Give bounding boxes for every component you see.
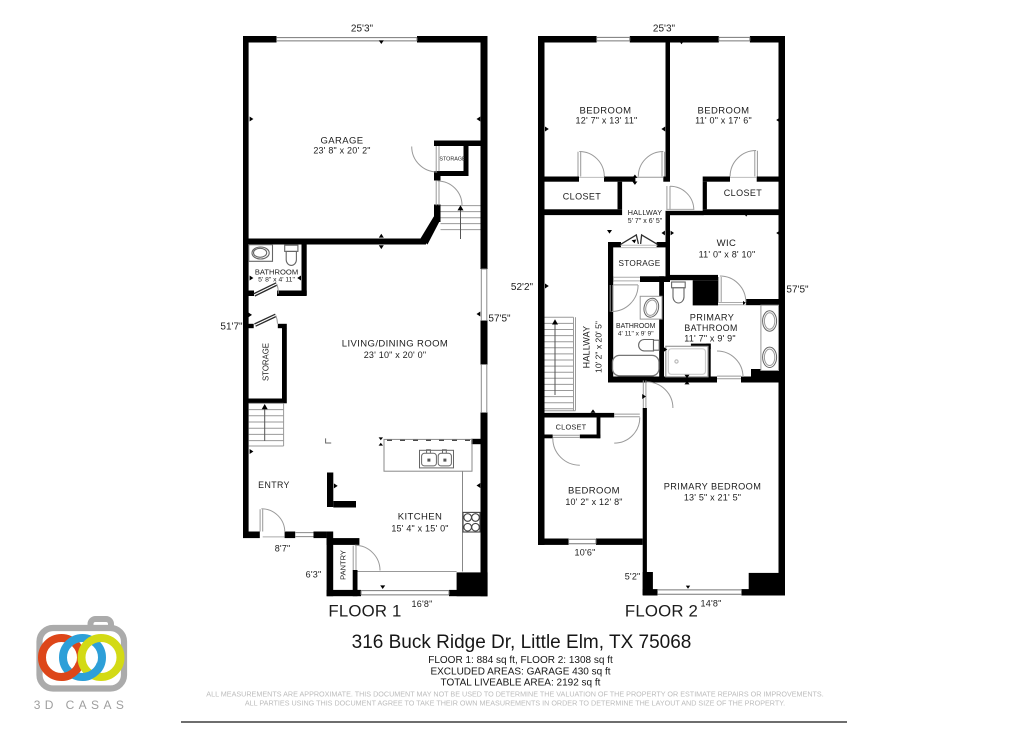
svg-text:5' 8" x 4' 11": 5' 8" x 4' 11": [258, 277, 295, 284]
svg-text:8'7": 8'7": [275, 544, 291, 554]
svg-text:14'8": 14'8": [701, 599, 722, 609]
svg-text:5' 7" x 6' 5": 5' 7" x 6' 5": [628, 218, 663, 225]
svg-text:11' 0" x 8' 10": 11' 0" x 8' 10": [699, 250, 756, 260]
svg-text:STORAGE: STORAGE: [262, 343, 271, 381]
svg-text:25'3": 25'3": [653, 24, 676, 35]
svg-text:BATHROOM: BATHROOM: [684, 323, 737, 333]
svg-text:3D CASAS: 3D CASAS: [34, 698, 129, 712]
svg-text:25'3": 25'3": [351, 24, 374, 35]
svg-text:FLOOR 1: 884 sq ft, FLOOR 2: 1: FLOOR 1: 884 sq ft, FLOOR 2: 1308 sq ft: [428, 655, 613, 666]
svg-text:12' 7" x 13' 11": 12' 7" x 13' 11": [576, 116, 638, 126]
svg-text:WIC: WIC: [717, 238, 737, 249]
svg-text:PRIMARY: PRIMARY: [690, 313, 735, 323]
svg-text:52'2": 52'2": [511, 282, 534, 293]
svg-text:15' 4" x 15' 0": 15' 4" x 15' 0": [391, 524, 448, 534]
svg-text:5'2": 5'2": [625, 572, 641, 582]
svg-text:EXCLUDED AREAS: GARAGE 430 sq: EXCLUDED AREAS: GARAGE 430 sq ft: [430, 666, 610, 677]
svg-text:PANTRY: PANTRY: [339, 550, 348, 580]
svg-text:CLOSET: CLOSET: [556, 423, 587, 432]
svg-text:CLOSET: CLOSET: [724, 188, 763, 198]
svg-text:PRIMARY BEDROOM: PRIMARY BEDROOM: [664, 482, 762, 492]
svg-text:51'7": 51'7": [220, 322, 243, 333]
svg-text:STORAGE: STORAGE: [619, 259, 661, 268]
svg-text:11' 7" x 9' 9": 11' 7" x 9' 9": [684, 333, 736, 343]
svg-text:BATHROOM: BATHROOM: [255, 268, 298, 277]
svg-text:LIVING/DINING ROOM: LIVING/DINING ROOM: [342, 339, 448, 350]
svg-text:23' 10" x 20' 0": 23' 10" x 20' 0": [364, 350, 427, 360]
svg-text:FLOOR 2: FLOOR 2: [625, 602, 698, 621]
svg-text:HALLWAY: HALLWAY: [628, 208, 662, 217]
svg-text:4' 11" x 9' 9": 4' 11" x 9' 9": [618, 331, 654, 338]
svg-text:23' 8" x 20' 2": 23' 8" x 20' 2": [313, 146, 370, 156]
svg-text:FLOOR 1: FLOOR 1: [328, 602, 401, 621]
svg-text:6'3": 6'3": [306, 570, 322, 580]
svg-text:ALL MEASUREMENTS ARE APPROXIMA: ALL MEASUREMENTS ARE APPROXIMATE. THIS D…: [206, 690, 823, 699]
svg-text:ENTRY: ENTRY: [258, 480, 290, 490]
svg-text:ALL PARTIES USING THIS DOCUMEN: ALL PARTIES USING THIS DOCUMENT AGREE TO…: [245, 699, 785, 708]
svg-text:11' 0" x 17' 6": 11' 0" x 17' 6": [695, 116, 752, 126]
svg-text:TOTAL LIVEABLE AREA: 2192 sq f: TOTAL LIVEABLE AREA: 2192 sq ft: [441, 678, 601, 689]
svg-text:57'5": 57'5": [488, 314, 511, 325]
svg-text:CLOSET: CLOSET: [563, 192, 602, 202]
svg-text:KITCHEN: KITCHEN: [398, 512, 443, 523]
svg-text:13' 5" x 21' 5": 13' 5" x 21' 5": [684, 492, 741, 502]
svg-text:16'8": 16'8": [412, 599, 433, 609]
svg-text:57'5": 57'5": [786, 285, 809, 296]
svg-text:10' 2" x 12' 8": 10' 2" x 12' 8": [565, 497, 622, 507]
svg-text:BATHROOM: BATHROOM: [616, 323, 656, 330]
svg-text:10'6": 10'6": [575, 548, 596, 558]
svg-text:STORAGE: STORAGE: [439, 157, 466, 163]
svg-text:HALLWAY: HALLWAY: [582, 326, 592, 369]
svg-text:316 Buck Ridge Dr, Little Elm,: 316 Buck Ridge Dr, Little Elm, TX 75068: [352, 632, 692, 653]
svg-text:BEDROOM: BEDROOM: [568, 486, 620, 497]
svg-text:10' 2" x 20' 5": 10' 2" x 20' 5": [594, 321, 604, 373]
